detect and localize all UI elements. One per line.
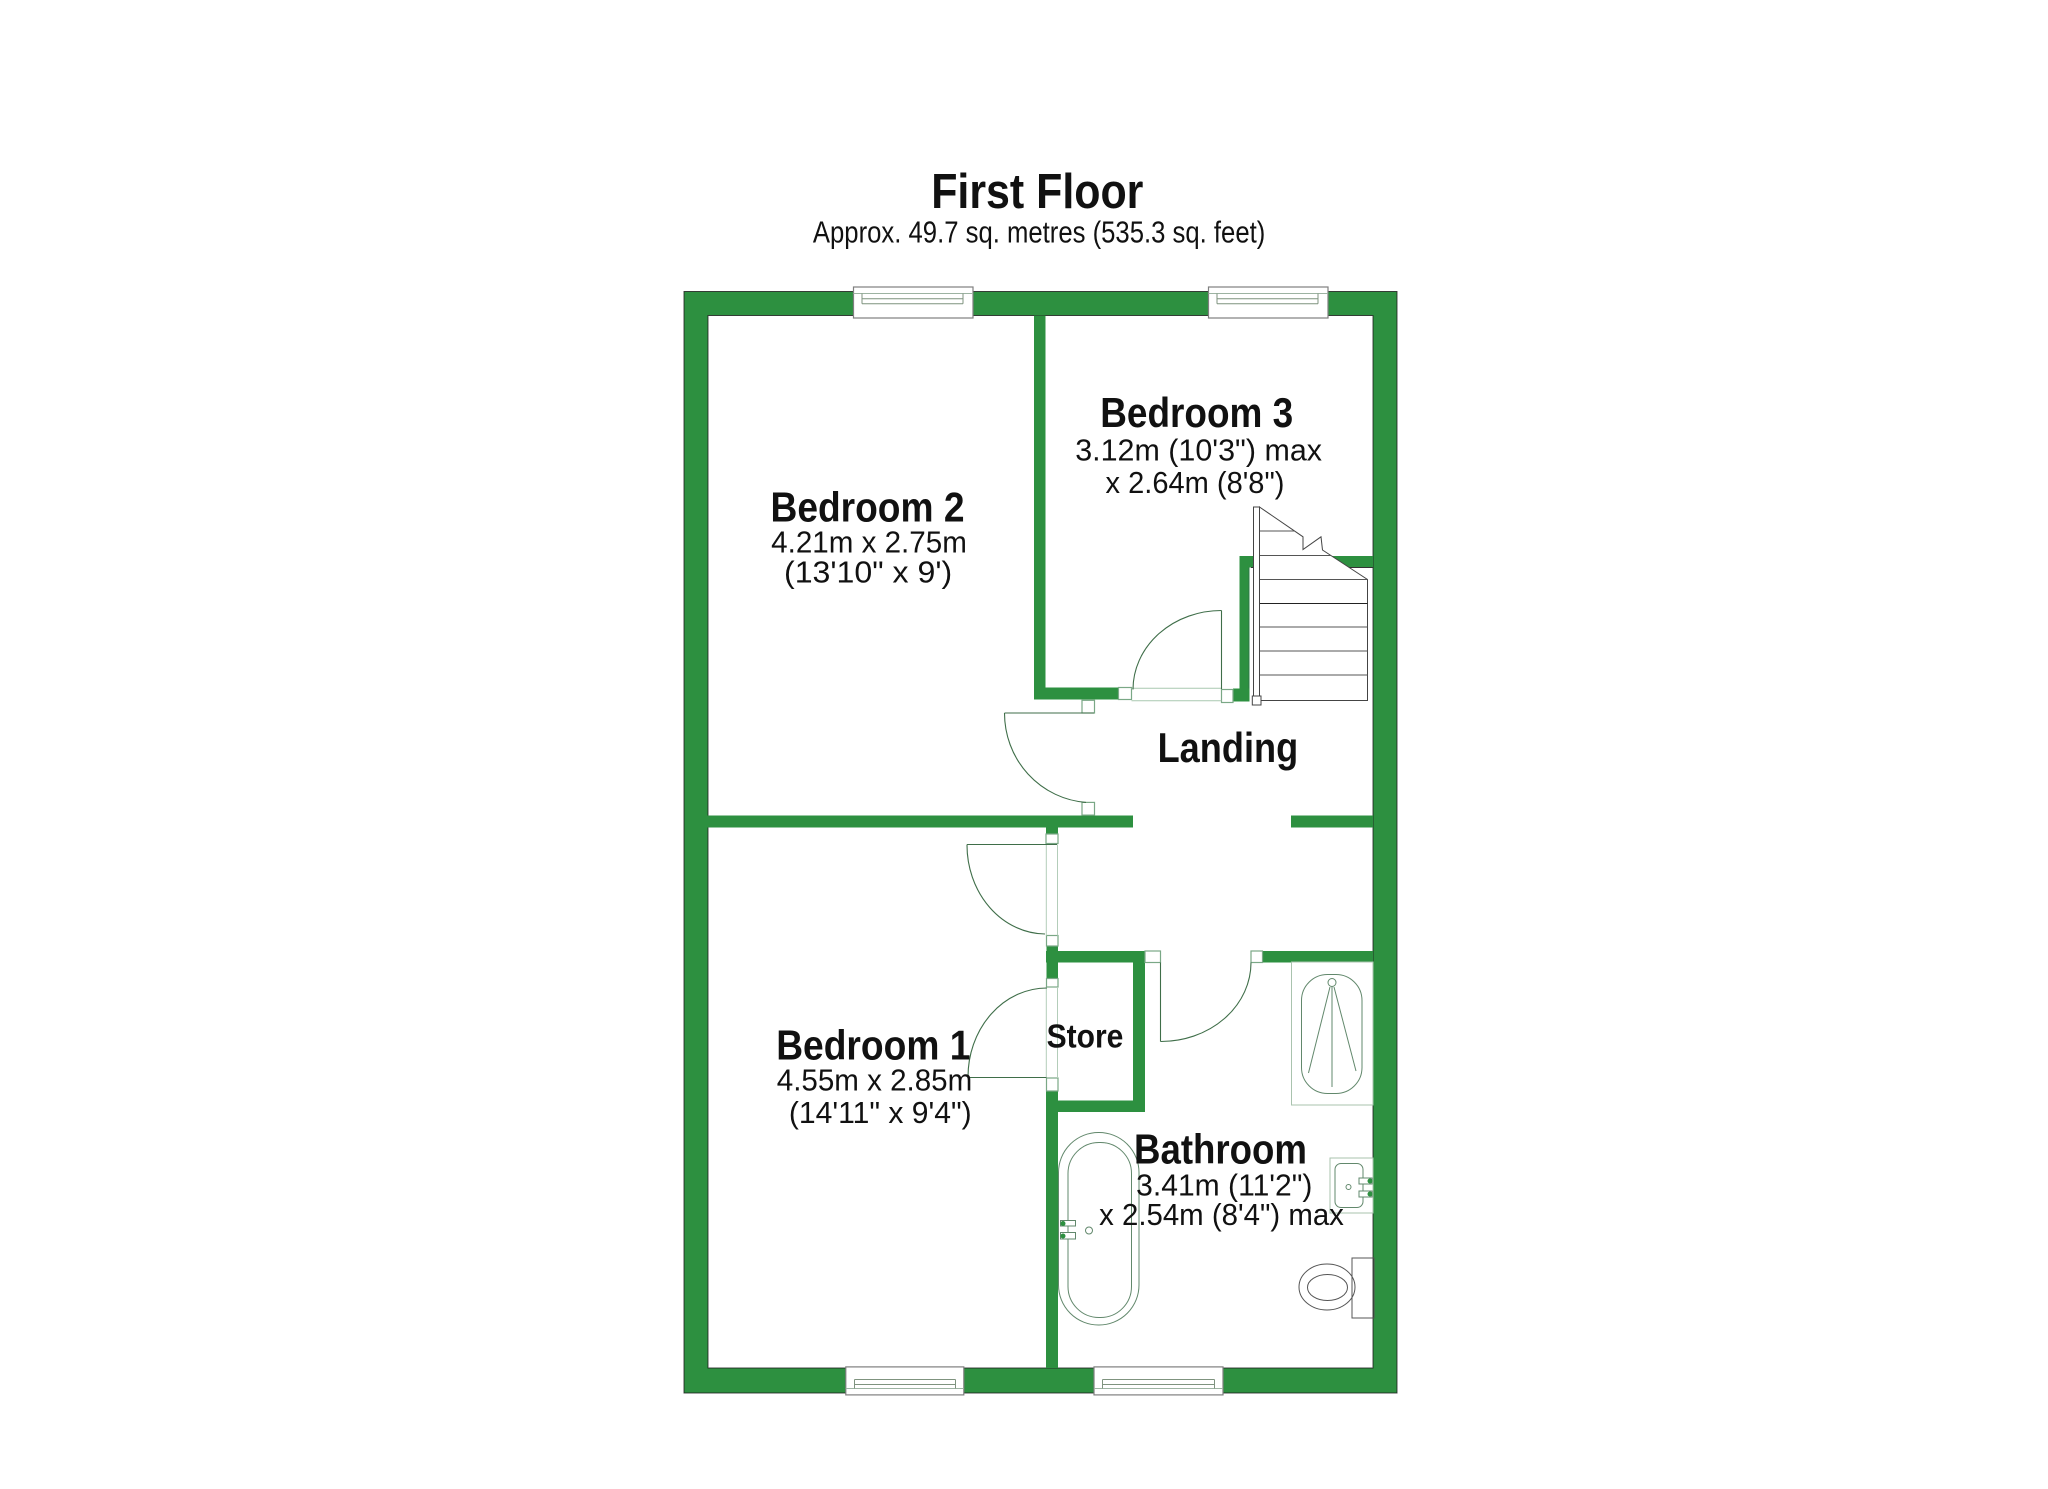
svg-text:Landing: Landing bbox=[1158, 724, 1299, 771]
svg-text:First Floor: First Floor bbox=[931, 164, 1143, 219]
svg-text:3.12m (10'3") max: 3.12m (10'3") max bbox=[1075, 433, 1322, 468]
svg-text:Bedroom 1: Bedroom 1 bbox=[776, 1021, 970, 1068]
svg-text:x 2.54m (8'4") max: x 2.54m (8'4") max bbox=[1099, 1197, 1344, 1232]
svg-text:x 2.64m (8'8"): x 2.64m (8'8") bbox=[1106, 465, 1285, 500]
svg-text:4.55m x 2.85m: 4.55m x 2.85m bbox=[777, 1063, 973, 1098]
svg-text:Bedroom 3: Bedroom 3 bbox=[1100, 389, 1293, 436]
svg-text:Bedroom 2: Bedroom 2 bbox=[771, 484, 965, 531]
svg-text:Store: Store bbox=[1047, 1018, 1124, 1055]
svg-text:Bathroom: Bathroom bbox=[1134, 1126, 1307, 1173]
svg-text:Approx. 49.7 sq. metres (535.3: Approx. 49.7 sq. metres (535.3 sq. feet) bbox=[813, 215, 1265, 250]
svg-text:(13'10" x 9'): (13'10" x 9') bbox=[784, 555, 952, 590]
svg-text:(14'11" x 9'4"): (14'11" x 9'4") bbox=[789, 1095, 972, 1130]
